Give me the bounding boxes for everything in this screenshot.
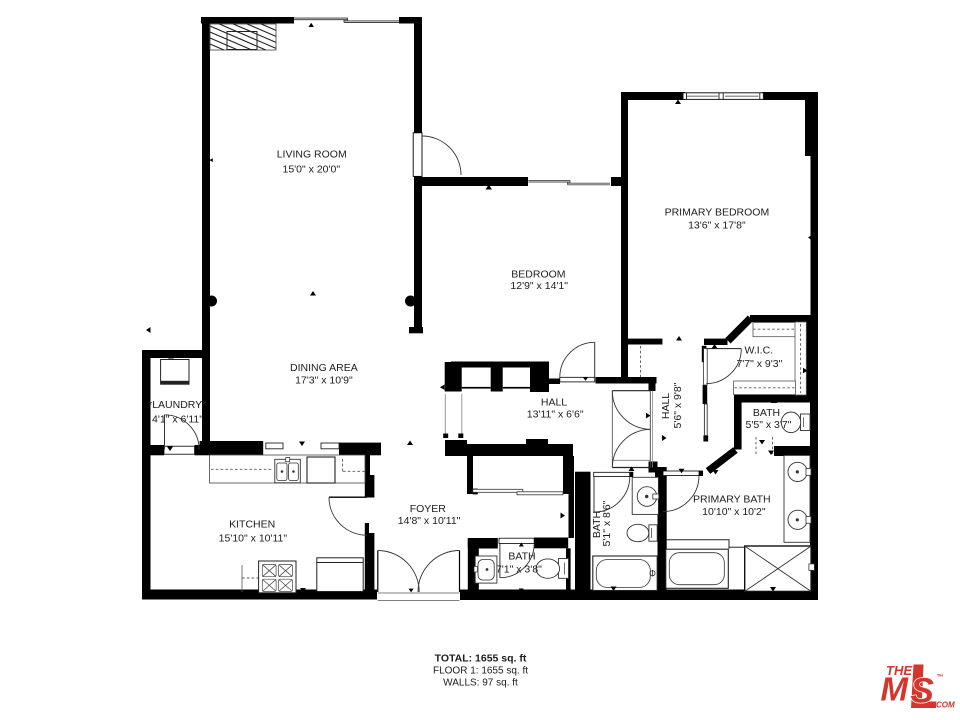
svg-text:BATH: BATH bbox=[753, 407, 780, 419]
svg-text:TOTAL: 1655 sq. ft: TOTAL: 1655 sq. ft bbox=[435, 653, 527, 665]
svg-text:5'6" x 9'8": 5'6" x 9'8" bbox=[672, 382, 684, 428]
svg-text:HALL: HALL bbox=[541, 397, 567, 409]
svg-text:LIVING ROOM: LIVING ROOM bbox=[277, 149, 347, 161]
svg-text:BEDROOM: BEDROOM bbox=[511, 268, 565, 280]
svg-text:17'3" x 10'9": 17'3" x 10'9" bbox=[295, 374, 353, 386]
svg-text:M: M bbox=[881, 671, 910, 708]
svg-text:13'11" x 6'6": 13'11" x 6'6" bbox=[527, 408, 584, 420]
svg-text:WALLS: 97 sq. ft: WALLS: 97 sq. ft bbox=[443, 678, 518, 689]
svg-text:14'8" x 10'11": 14'8" x 10'11" bbox=[398, 515, 461, 527]
svg-text:FOYER: FOYER bbox=[410, 503, 447, 515]
svg-text:PRIMARY BATH: PRIMARY BATH bbox=[693, 493, 771, 505]
svg-text:*LAUNDRY*: *LAUNDRY* bbox=[148, 399, 206, 411]
svg-text:HALL: HALL bbox=[660, 393, 672, 419]
svg-text:5'5" x 3'7": 5'5" x 3'7" bbox=[746, 419, 792, 431]
svg-text:PRIMARY BEDROOM: PRIMARY BEDROOM bbox=[665, 207, 770, 219]
svg-text:FLOOR 1: 1655 sq. ft: FLOOR 1: 1655 sq. ft bbox=[433, 666, 528, 677]
svg-text:™: ™ bbox=[937, 674, 944, 681]
svg-text:KITCHEN: KITCHEN bbox=[229, 518, 275, 530]
svg-text:4'1" x 6'11": 4'1" x 6'11" bbox=[152, 413, 203, 425]
svg-text:BATH: BATH bbox=[508, 550, 535, 562]
svg-text:W.I.C.: W.I.C. bbox=[745, 345, 774, 357]
svg-text:10'10" x 10'2": 10'10" x 10'2" bbox=[702, 506, 766, 518]
svg-text:7'7" x 9'3": 7'7" x 9'3" bbox=[736, 358, 782, 370]
svg-text:15'0" x 20'0": 15'0" x 20'0" bbox=[283, 164, 341, 176]
svg-text:5'1" x 8'6": 5'1" x 8'6" bbox=[601, 500, 613, 546]
svg-text:12'9" x 14'1": 12'9" x 14'1" bbox=[510, 280, 568, 292]
svg-text:7'1" x 3'8": 7'1" x 3'8" bbox=[496, 563, 542, 575]
svg-text:S: S bbox=[911, 672, 934, 711]
svg-text:.COM: .COM bbox=[934, 701, 955, 710]
svg-text:15'10" x 10'11": 15'10" x 10'11" bbox=[219, 532, 288, 544]
svg-text:DINING AREA: DINING AREA bbox=[290, 362, 358, 374]
svg-text:13'6" x 17'8": 13'6" x 17'8" bbox=[688, 220, 746, 232]
